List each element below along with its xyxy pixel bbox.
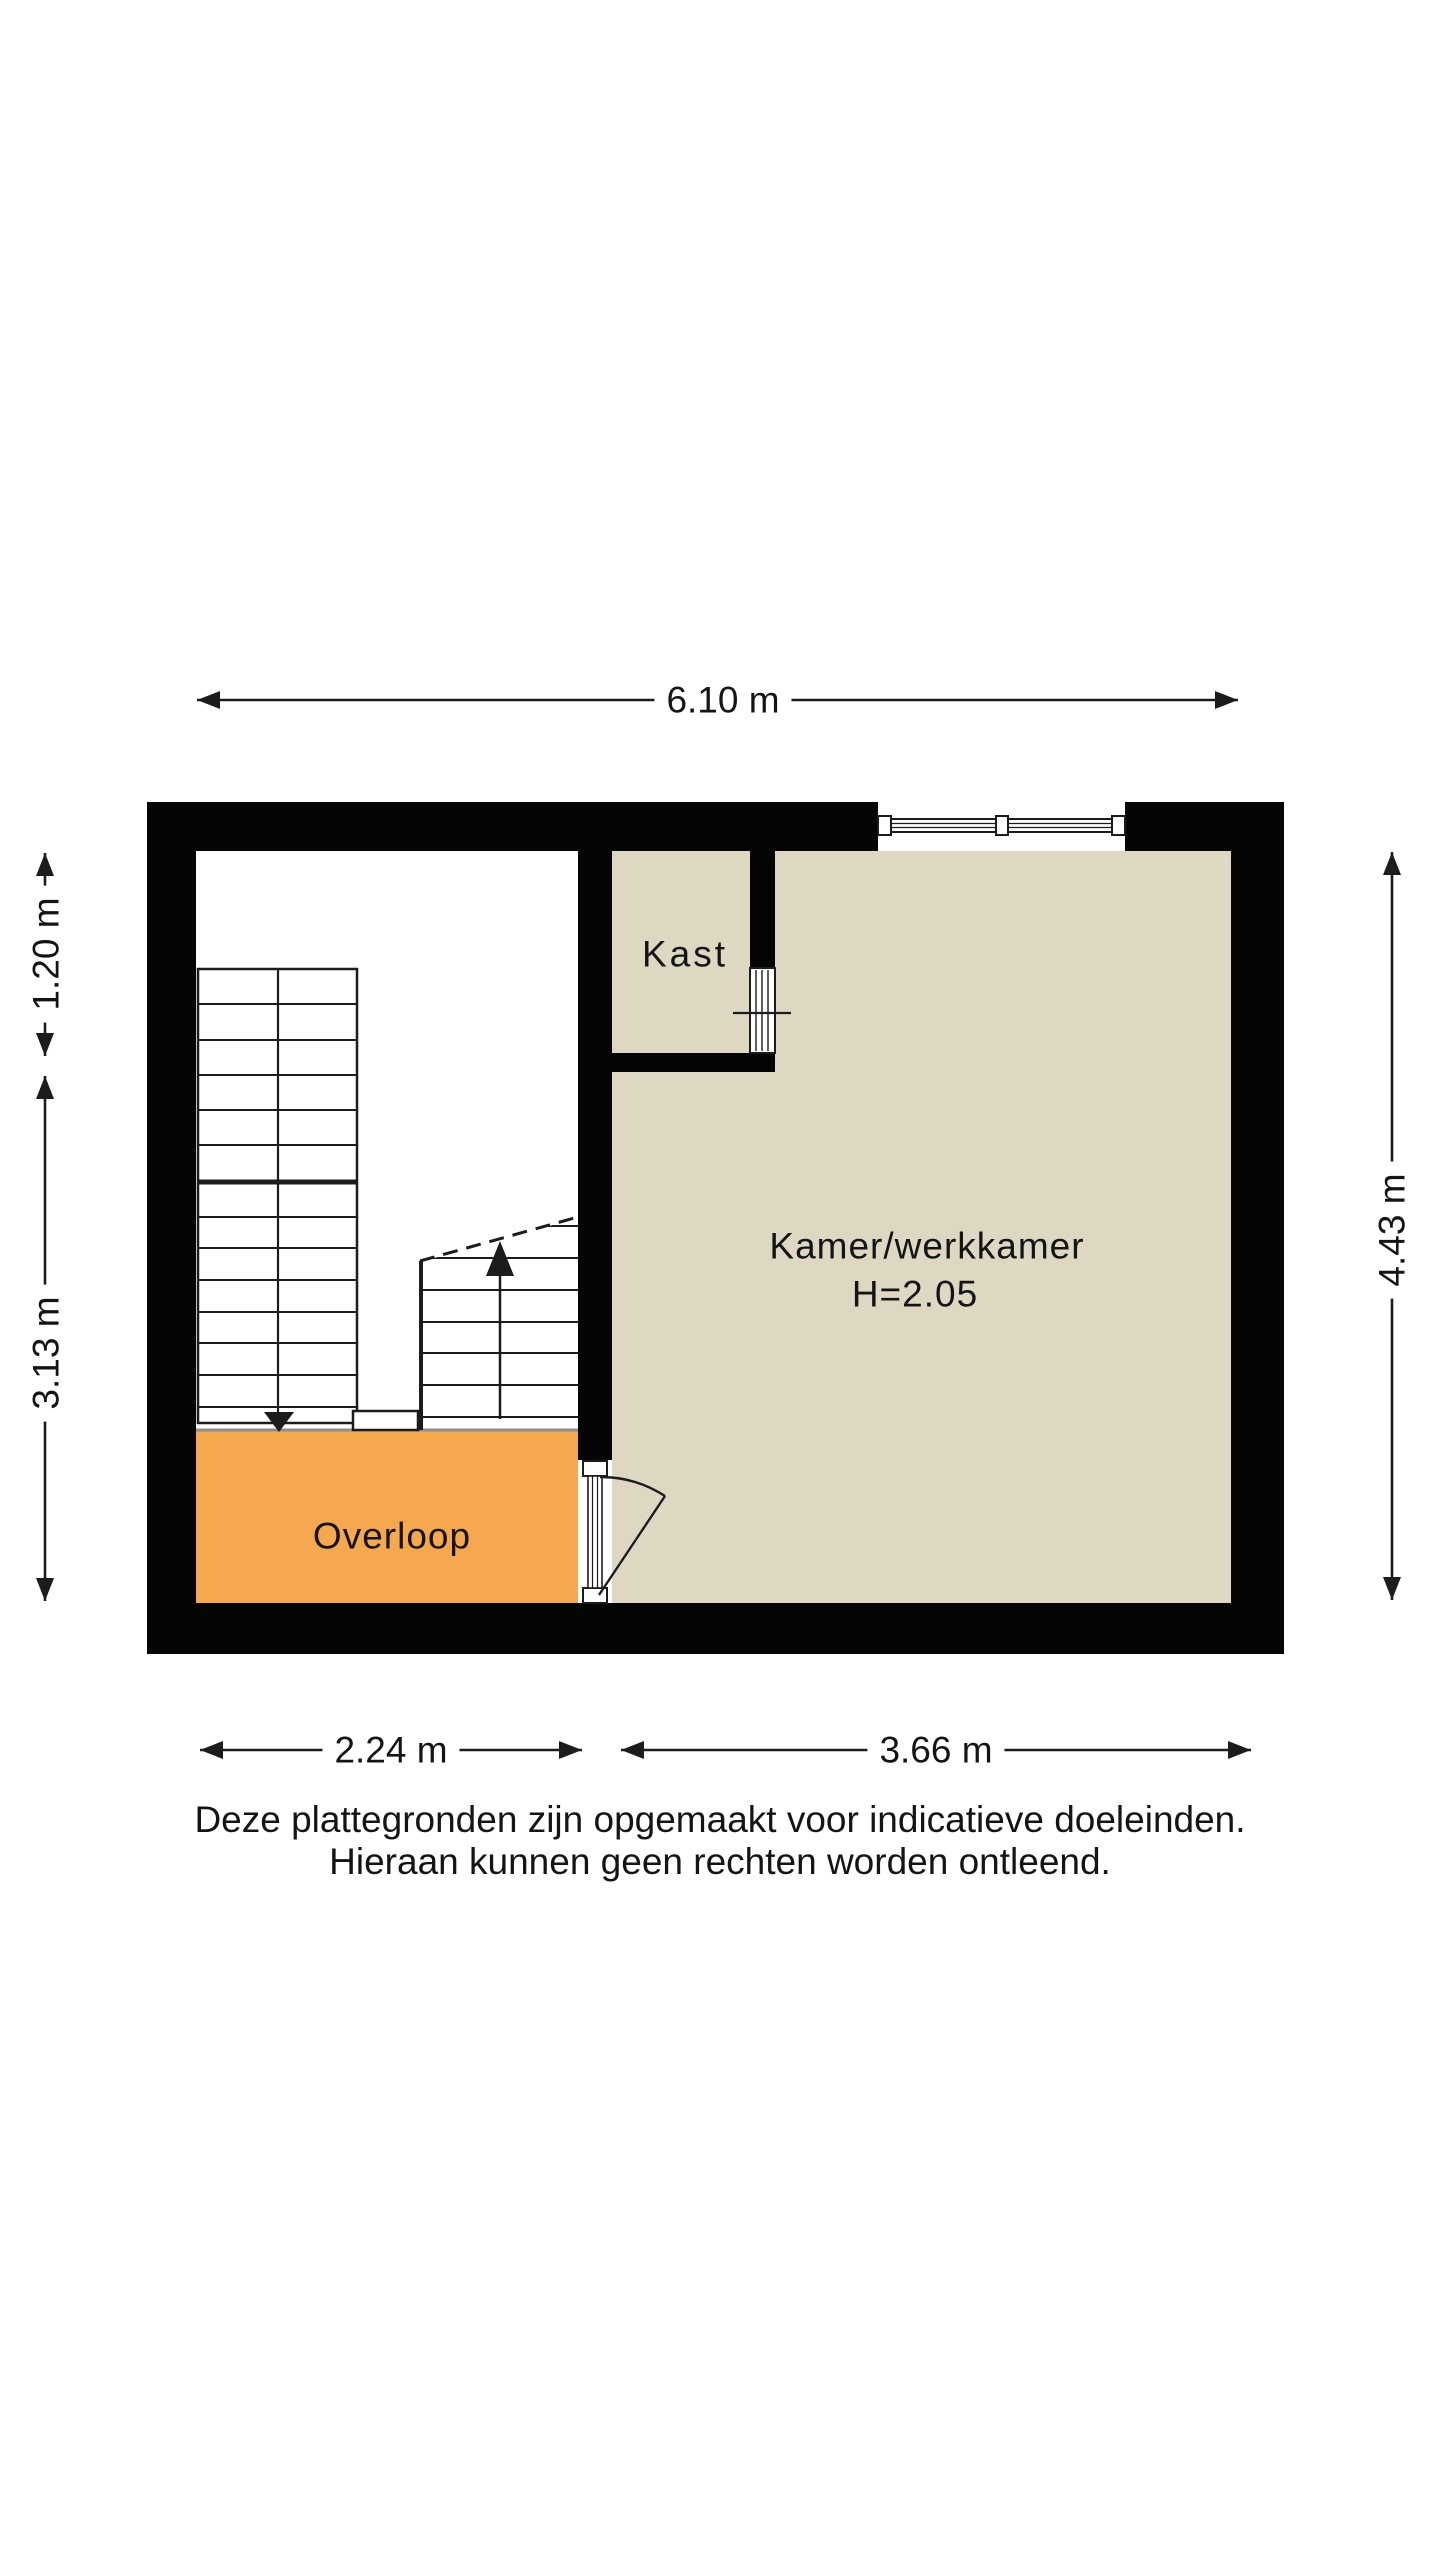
room-label-kamer-height: H=2.05 [852, 1276, 978, 1313]
wall-bottom [147, 1603, 1284, 1654]
room-label-kast: Kast [642, 936, 728, 973]
room-label-overloop: Overloop [313, 1518, 471, 1555]
door-jamb-top [583, 1461, 607, 1476]
wall-left [147, 802, 196, 1654]
wall-kast-right [750, 851, 775, 968]
disclaimer-line-1: Deze plattegronden zijn opgemaakt voor i… [0, 1799, 1440, 1841]
door-leaf-closed [588, 1476, 602, 1588]
disclaimer-line-2: Hieraan kunnen geen rechten worden ontle… [0, 1841, 1440, 1883]
wall-kast-bottom [612, 1053, 775, 1072]
dimension-label-bottom-right: 3.66 m [867, 1730, 1004, 1771]
dimension-label-left-upper: 1.20 m [26, 885, 67, 1022]
disclaimer-text: Deze plattegronden zijn opgemaakt voor i… [0, 1799, 1440, 1883]
floorplan-drawing [0, 0, 1440, 2560]
floorplan-page: 6.10 m 1.20 m 3.13 m 4.43 m 2.24 m 3.66 … [0, 0, 1440, 2560]
wall-right [1231, 802, 1284, 1654]
window-post-center [996, 816, 1008, 835]
wall-top-left-segment [147, 802, 878, 851]
stair-landing-step [353, 1411, 418, 1430]
dimension-label-top-width: 6.10 m [654, 680, 791, 721]
window-post-right [1112, 816, 1125, 835]
wall-stairwell-divider [578, 851, 612, 1460]
window-post-left [878, 816, 891, 835]
window [878, 796, 1125, 851]
dimension-label-right-height: 4.43 m [1372, 1161, 1413, 1298]
dimension-label-bottom-left: 2.24 m [322, 1730, 459, 1771]
room-label-kamer: Kamer/werkkamer [769, 1228, 1084, 1265]
dimension-label-left-lower: 3.13 m [26, 1284, 67, 1421]
